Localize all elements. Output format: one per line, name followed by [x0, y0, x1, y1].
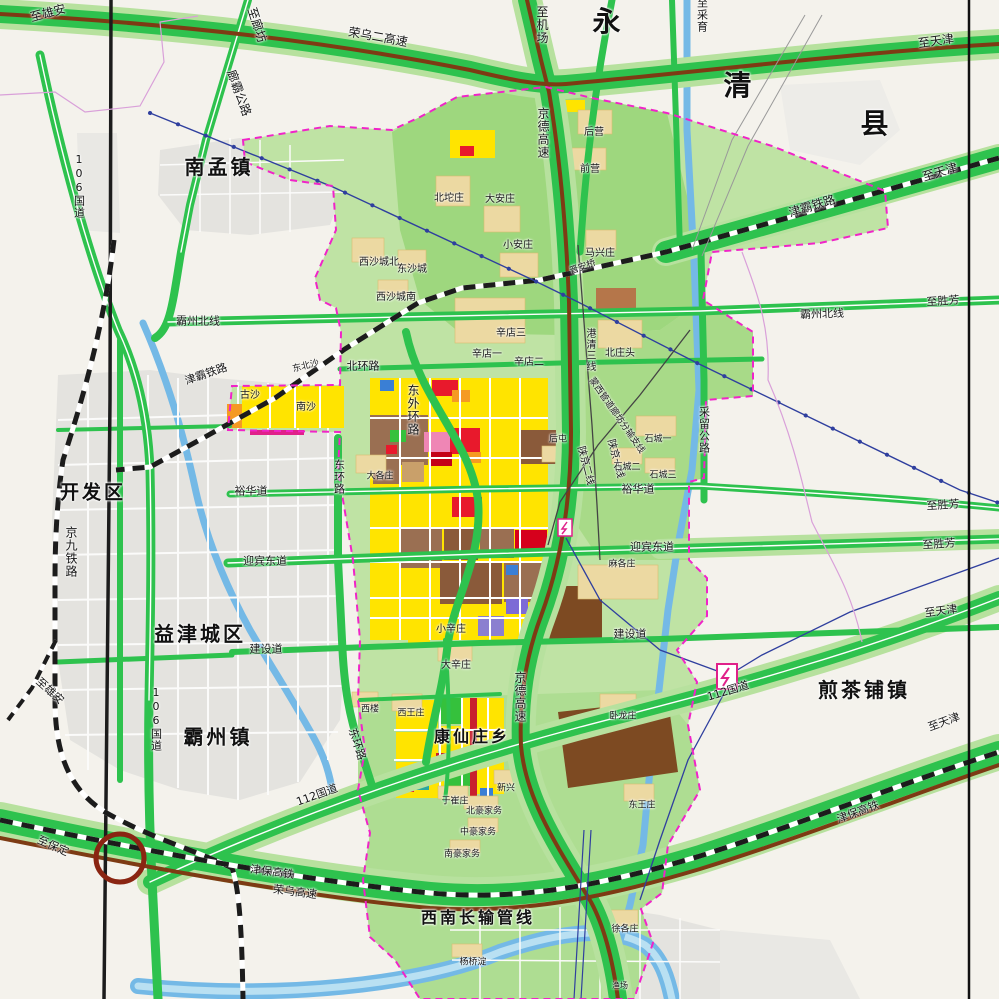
map-label-zone: 益津城区 [154, 624, 246, 644]
map-label-village: 石城三 [649, 472, 676, 481]
map-label-village: 辛店二 [514, 358, 544, 368]
map-label-village: 石城二 [613, 464, 640, 473]
map-label-direction: 至采育 [697, 0, 708, 33]
map-label-direction: 至保定 [36, 834, 71, 857]
map-label-village: 北豪家务 [466, 808, 502, 817]
map-label-road: 东外环路 [407, 384, 419, 436]
map-label-expressway: 京德高速 [537, 107, 549, 159]
map-label-expressway: 荣乌高速 [272, 884, 317, 900]
map-label-village: 后屯 [549, 436, 567, 445]
map-label-road: 112国道 [706, 679, 750, 702]
map-label-road: 106国道 [151, 686, 162, 752]
map-label-village: 卧龙庄 [609, 713, 636, 722]
map-label-direction: 至胜芳 [922, 537, 956, 550]
map-label-village: 北坨庄 [434, 194, 464, 204]
map-label-direction: 至雄安 [29, 3, 67, 24]
map-label-railway: 津霸铁路 [787, 193, 836, 219]
map-label-road: 迎宾东道 [243, 556, 287, 567]
map-label-village: 于崔庄 [441, 798, 468, 807]
map-label-village: 东王庄 [628, 802, 655, 811]
map-label-village: 西沙城北 [359, 258, 399, 268]
map-label-direction: 至胜芳 [926, 294, 960, 307]
planning-map: 至雄安至廊坊廊霸公路荣乌二高速至机场永清县至采育至天津京德高速津霸铁路至天津南孟… [0, 0, 999, 999]
labels-layer: 至雄安至廊坊廊霸公路荣乌二高速至机场永清县至采育至天津京德高速津霸铁路至天津南孟… [0, 0, 999, 999]
map-label-village: 东沙城 [397, 265, 427, 275]
map-label-village: 马兴庄 [585, 249, 615, 259]
map-label-direction: 至雄安 [34, 676, 66, 706]
map-label-road: 建设道 [614, 629, 647, 640]
map-label-village: 辛店三 [496, 329, 526, 339]
map-label-road: 东环路 [347, 727, 368, 762]
map-label-village: 徐各庄 [611, 926, 638, 935]
map-label-village: 杨桥淀 [459, 959, 486, 968]
map-label-village: 西楼 [361, 706, 379, 715]
map-label-road: 106国道 [74, 153, 85, 219]
map-label-village: 小安庄 [503, 241, 533, 251]
map-label-town: 康仙庄乡 [434, 729, 510, 745]
map-label-pipeline: 西南长输管线 [421, 910, 535, 926]
map-label-region: 县 [860, 110, 891, 138]
map-label-village: 大各庄 [366, 473, 393, 482]
map-label-village: 西沙城南 [376, 293, 416, 303]
map-label-direction: 至机场 [536, 6, 548, 45]
map-label-pipeline: 港清三线 [584, 328, 594, 372]
map-label-road: 112国道 [295, 782, 339, 807]
map-label-pipeline: 陕京一线 [605, 438, 625, 479]
map-label-village: 小辛庄 [436, 625, 466, 635]
map-label-railway: 津保高铁 [249, 864, 294, 880]
map-label-zone: 开发区 [60, 484, 126, 503]
map-label-road: 采留公路 [699, 406, 710, 454]
map-label-village: 新兴 [497, 785, 515, 794]
map-label-road: 东环路 [334, 459, 345, 495]
map-label-village: 中豪家务 [460, 829, 496, 838]
map-label-road: 霸州北线 [800, 308, 844, 321]
map-label-railway: 津霸铁路 [183, 362, 228, 387]
map-label-village: 南豪家务 [444, 851, 480, 860]
map-label-direction: 至天津 [917, 33, 954, 50]
map-label-village: 后营 [584, 128, 604, 138]
map-label-direction: 至廊坊 [246, 6, 269, 44]
map-label-road: 建设道 [250, 644, 283, 655]
map-label-town: 煎茶铺镇 [818, 680, 910, 700]
map-label-road: 裕华道 [622, 484, 655, 495]
map-label-region: 永 [592, 8, 623, 36]
map-label-road: 迎宾东道 [630, 542, 674, 553]
map-label-road: 霸州北线 [176, 316, 220, 327]
map-label-pipeline: 陕京二线 [575, 445, 595, 486]
map-label-direction: 至天津 [924, 603, 958, 618]
map-label-village: 西王庄 [397, 710, 424, 719]
map-label-village: 古沙 [240, 391, 260, 401]
map-label-village: 大安庄 [485, 195, 515, 205]
map-label-expressway: 荣乌二高速 [347, 26, 408, 48]
map-label-village: 东北沙 [292, 359, 320, 374]
map-label-railway: 津保高铁 [835, 799, 880, 824]
map-label-village: 北庄头 [605, 349, 635, 359]
map-label-village: 石城一 [644, 436, 671, 445]
map-label-expressway: 京德高速 [514, 671, 526, 723]
map-label-village: 辛店一 [472, 350, 502, 360]
map-label-village: 大辛庄 [441, 661, 471, 671]
map-label-direction: 至胜芳 [926, 498, 960, 511]
map-label-town: 霸州镇 [184, 727, 253, 747]
map-label-railway: 京九铁路 [65, 526, 77, 578]
map-label-village: 南沙 [296, 403, 316, 413]
map-label-road: 廊霸公路 [225, 68, 253, 117]
map-label-region: 清 [723, 72, 754, 100]
map-label-road: 裕华道 [235, 486, 268, 497]
map-label-village: 前营 [580, 165, 600, 175]
map-label-direction: 至天津 [921, 161, 959, 183]
map-label-road: 北环路 [347, 361, 380, 372]
map-label-village: 晋安桥 [569, 259, 597, 277]
map-label-village: 麻各庄 [608, 561, 635, 570]
map-label-town: 南孟镇 [185, 157, 254, 177]
map-label-village: 渔场 [612, 982, 628, 990]
map-label-direction: 至天津 [927, 711, 962, 733]
